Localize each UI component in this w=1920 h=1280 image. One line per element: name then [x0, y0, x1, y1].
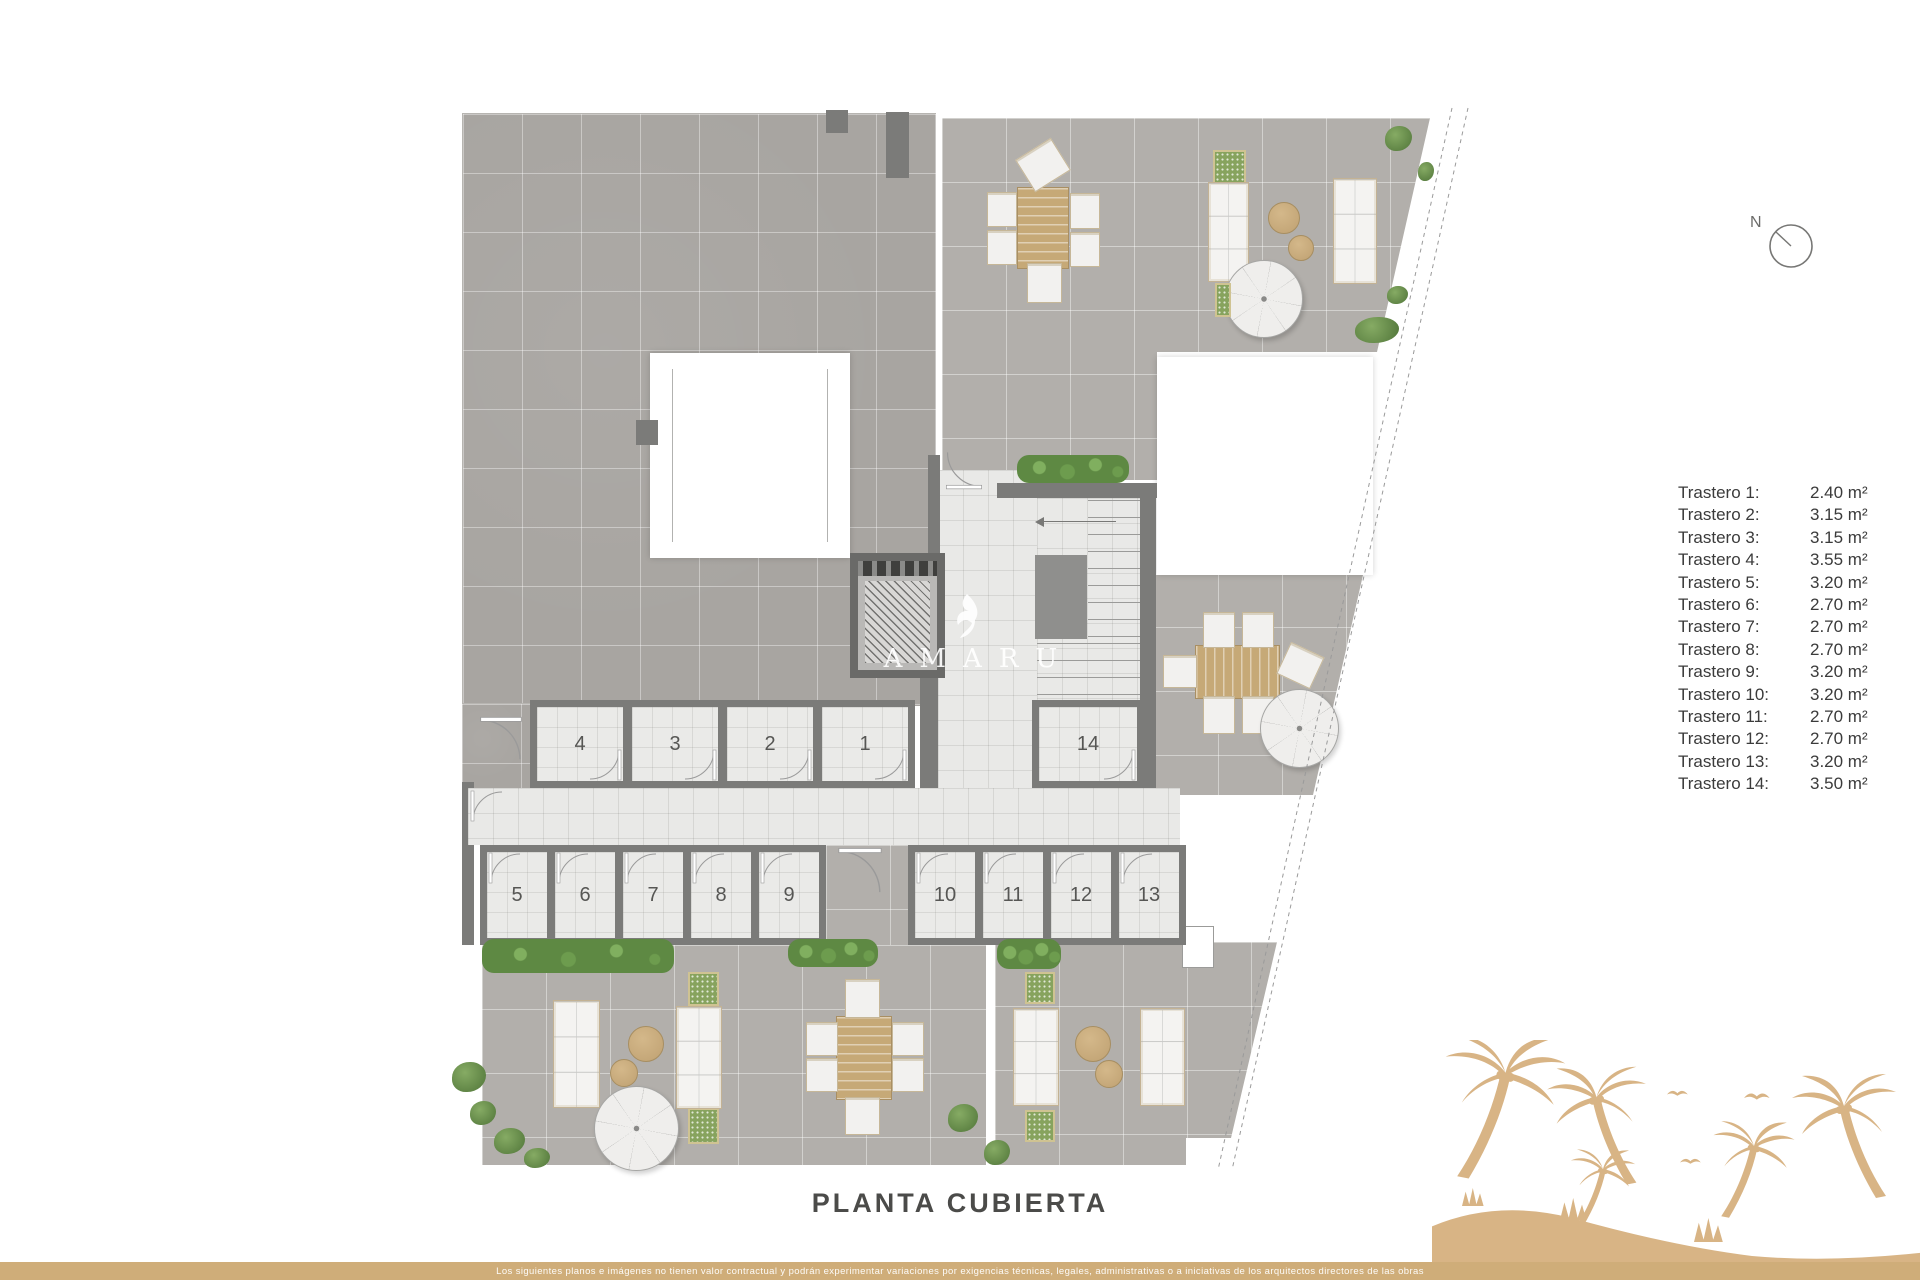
legend-label: Trastero 8: [1678, 639, 1810, 661]
legend-label: Trastero 7: [1678, 616, 1810, 638]
palm-trees-illustration [1432, 1040, 1920, 1280]
disclaimer-bar: Los siguientes planos e imágenes no tien… [0, 1262, 1920, 1280]
legend-row: Trastero 7:2.70 m² [1678, 616, 1868, 638]
legend-label: Trastero 13: [1678, 751, 1810, 773]
legend-value: 3.15 m² [1810, 528, 1868, 547]
legend-row: Trastero 11:2.70 m² [1678, 706, 1868, 728]
legend-label: Trastero 1: [1678, 482, 1810, 504]
legend-row: Trastero 2:3.15 m² [1678, 504, 1868, 526]
legend-row: Trastero 14:3.50 m² [1678, 773, 1868, 795]
legend-value: 3.20 m² [1810, 685, 1868, 704]
legend-value: 2.70 m² [1810, 617, 1868, 636]
legend-row: Trastero 3:3.15 m² [1678, 527, 1868, 549]
legend-value: 3.20 m² [1810, 662, 1868, 681]
legend-label: Trastero 9: [1678, 661, 1810, 683]
legend-value: 3.15 m² [1810, 505, 1868, 524]
legend-label: Trastero 2: [1678, 504, 1810, 526]
compass: N [1745, 210, 1835, 280]
legend-label: Trastero 5: [1678, 572, 1810, 594]
legend-row: Trastero 8:2.70 m² [1678, 639, 1868, 661]
legend-value: 2.70 m² [1810, 640, 1868, 659]
legend-row: Trastero 1:2.40 m² [1678, 482, 1868, 504]
legend-value: 2.70 m² [1810, 707, 1868, 726]
legend-label: Trastero 3: [1678, 527, 1810, 549]
legend-label: Trastero 6: [1678, 594, 1810, 616]
legend-row: Trastero 10:3.20 m² [1678, 684, 1868, 706]
floor-plan-page: 4 3 2 1 14 5 6 7 8 9 10 11 12 13 [0, 0, 1920, 1280]
legend-label: Trastero 10: [1678, 684, 1810, 706]
legend-label: Trastero 12: [1678, 728, 1810, 750]
legend-row: Trastero 9:3.20 m² [1678, 661, 1868, 683]
legend-row: Trastero 13:3.20 m² [1678, 751, 1868, 773]
legend-label: Trastero 14: [1678, 773, 1810, 795]
legend-label: Trastero 11: [1678, 706, 1810, 728]
legend-row: Trastero 12:2.70 m² [1678, 728, 1868, 750]
compass-north-label: N [1750, 214, 1762, 232]
legend-value: 2.70 m² [1810, 729, 1868, 748]
legend-row: Trastero 6:2.70 m² [1678, 594, 1868, 616]
compass-icon [1768, 223, 1814, 269]
disclaimer-text: Los siguientes planos e imágenes no tien… [496, 1266, 1424, 1277]
legend-value: 3.20 m² [1810, 752, 1868, 771]
legend-row: Trastero 4:3.55 m² [1678, 549, 1868, 571]
legend-value: 2.70 m² [1810, 595, 1868, 614]
legend-value: 3.55 m² [1810, 550, 1868, 569]
legend-value: 3.20 m² [1810, 573, 1868, 592]
legend-row: Trastero 5:3.20 m² [1678, 572, 1868, 594]
storage-legend: Trastero 1:2.40 m²Trastero 2:3.15 m²Tras… [1678, 482, 1868, 795]
legend-value: 2.40 m² [1810, 483, 1868, 502]
legend-label: Trastero 4: [1678, 549, 1810, 571]
legend-value: 3.50 m² [1810, 774, 1868, 793]
